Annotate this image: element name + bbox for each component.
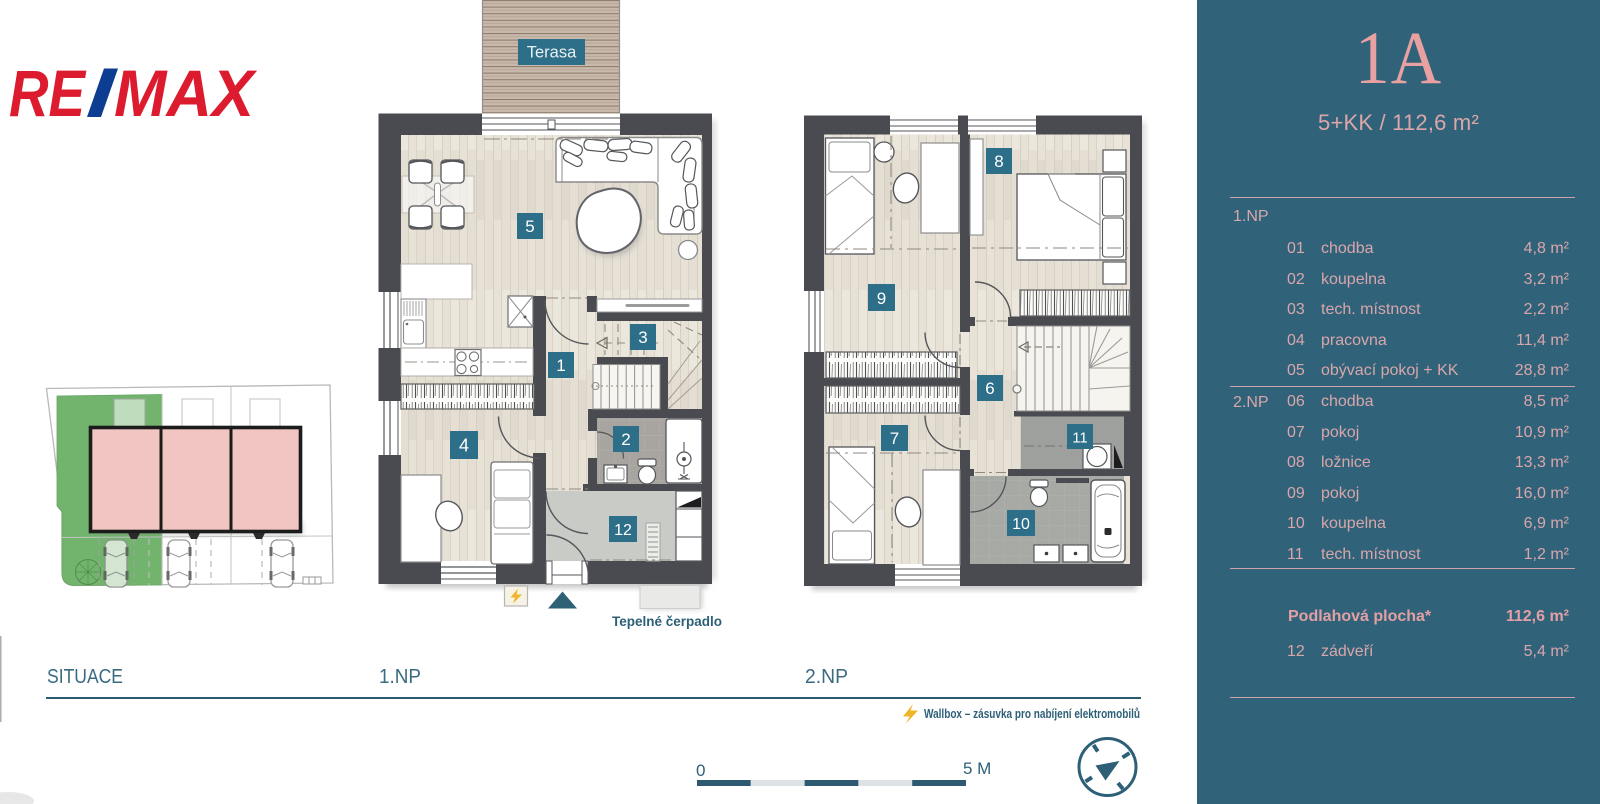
svg-text:Tepelné čerpadlo: Tepelné čerpadlo <box>612 614 722 629</box>
svg-text:4: 4 <box>459 436 469 456</box>
svg-text:5: 5 <box>525 217 534 236</box>
svg-text:SITUACE: SITUACE <box>47 666 123 688</box>
svg-text:11: 11 <box>1072 430 1088 447</box>
svg-text:1: 1 <box>556 356 565 375</box>
svg-text:3: 3 <box>638 328 647 347</box>
svg-text:1.NP: 1.NP <box>379 666 421 688</box>
svg-text:2.NP: 2.NP <box>805 666 848 688</box>
svg-text:2: 2 <box>621 430 630 449</box>
svg-text:0: 0 <box>696 761 705 780</box>
svg-text:6: 6 <box>985 379 994 398</box>
svg-text:Terasa: Terasa <box>527 44 577 62</box>
svg-text:5 M: 5 M <box>963 759 991 778</box>
svg-text:Wallbox – zásuvka pro nabíjení: Wallbox – zásuvka pro nabíjení elektromo… <box>924 707 1140 721</box>
svg-text:7: 7 <box>890 429 899 448</box>
svg-text:10: 10 <box>1012 516 1030 533</box>
svg-text:RE: RE <box>9 56 87 130</box>
svg-text:9: 9 <box>877 289 886 308</box>
svg-text:12: 12 <box>614 522 632 539</box>
svg-text:8: 8 <box>994 152 1003 171</box>
svg-text:MAX: MAX <box>114 56 258 130</box>
